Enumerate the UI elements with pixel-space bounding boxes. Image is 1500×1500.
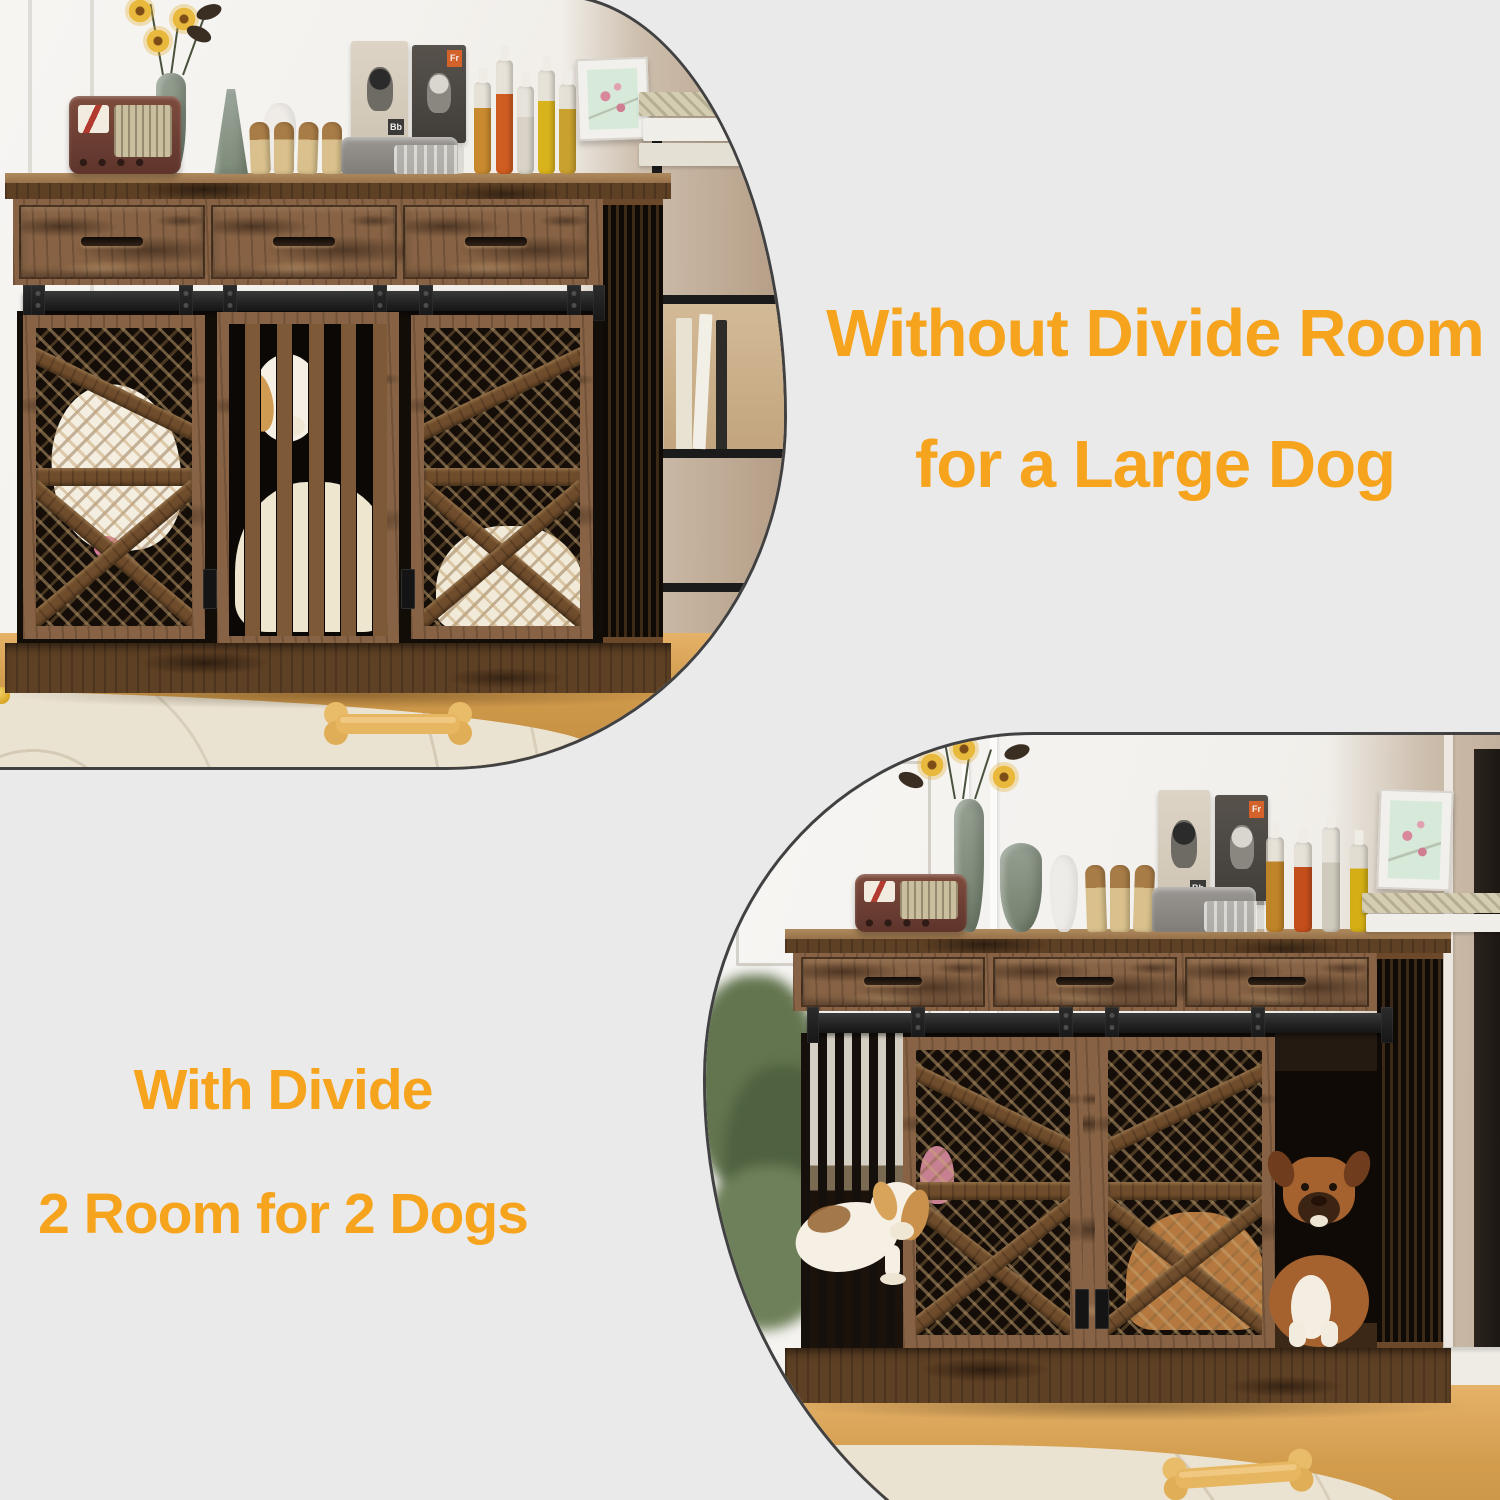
box-logo-fr: Fr <box>1249 801 1264 818</box>
deco-book <box>639 143 743 166</box>
drawer <box>801 957 985 1007</box>
headline-line: for a Large Dog <box>810 430 1500 500</box>
dog-package-graphic <box>367 67 393 111</box>
center-door-window <box>229 324 387 636</box>
crate-top-edge <box>785 939 1451 953</box>
box-logo-bb: Bb <box>388 119 404 135</box>
treat-tube <box>322 122 342 174</box>
headline-line: With Divide <box>0 1061 566 1120</box>
drawer-handle <box>1248 977 1306 985</box>
oil-vial-red <box>1294 842 1312 932</box>
picture-frame <box>1376 789 1453 892</box>
dog-crate-single <box>13 173 663 693</box>
headline-with-divider: With Divide 2 Room for 2 Dogs <box>0 1061 566 1244</box>
radio-knobs <box>864 919 931 927</box>
sunflower <box>920 753 944 777</box>
dog-package-graphic <box>1230 825 1254 869</box>
pet-food-box: Bb <box>1158 790 1210 902</box>
door-hinge <box>203 569 217 609</box>
oil-bottle-pale <box>517 86 534 174</box>
barn-door-window <box>424 328 580 626</box>
crate-base <box>5 643 671 693</box>
headline-line: Without Divide Room <box>810 299 1500 369</box>
barn-door-window <box>1108 1050 1262 1335</box>
door-brace-horizontal <box>1108 1182 1262 1200</box>
door-hanger <box>567 285 581 319</box>
rail-bracket <box>807 1007 819 1043</box>
dog-crate-divided <box>793 929 1443 1403</box>
boxer-dog <box>1261 1135 1381 1351</box>
book-spine <box>676 318 692 449</box>
sliding-door-rail <box>23 291 595 311</box>
clear-pack <box>394 145 464 174</box>
dog-package-graphic <box>427 73 451 113</box>
shelf-cubby <box>664 304 787 449</box>
drawer-handle <box>1056 977 1114 985</box>
barn-door-window <box>36 328 192 626</box>
drawer <box>211 205 397 279</box>
shelf-beam <box>652 449 787 458</box>
sunflower <box>992 765 1016 789</box>
dog-package-graphic <box>1171 820 1197 868</box>
frame-artwork <box>587 68 639 130</box>
door-hanger <box>1251 1007 1265 1041</box>
radio-display <box>864 881 895 902</box>
door-hanger <box>911 1007 925 1041</box>
box-logo-fr: Fr <box>447 50 462 67</box>
door-hanger <box>31 285 45 319</box>
oil-vial-amber <box>1266 837 1284 932</box>
rail-bracket <box>1381 1007 1393 1043</box>
door-hanger <box>1059 1007 1073 1041</box>
drawer-row <box>13 199 603 285</box>
radio-knobs <box>78 157 145 168</box>
vase-cone <box>214 89 248 174</box>
drawer <box>403 205 589 279</box>
door-hinge <box>1075 1289 1089 1329</box>
drawer <box>993 957 1177 1007</box>
treat-tube <box>1085 865 1107 933</box>
oil-bottle-orange <box>496 60 513 174</box>
barn-door-right <box>1095 1037 1275 1348</box>
frame-artwork <box>1388 800 1443 880</box>
door-hanger <box>1105 1007 1119 1041</box>
treat-tube <box>274 122 294 174</box>
deco-book <box>1366 914 1500 932</box>
sunflower <box>128 0 152 23</box>
headline-line: 2 Room for 2 Dogs <box>0 1185 566 1244</box>
wood-slats <box>229 324 387 636</box>
pet-food-box-dark: Fr <box>412 45 466 143</box>
door-hinge <box>401 569 415 609</box>
pet-food-box: Bb <box>351 41 408 140</box>
drawer <box>1185 957 1369 1007</box>
dark-furniture-edge <box>1474 749 1500 1425</box>
dried-bloom <box>194 1 223 23</box>
door-brace-horizontal <box>424 468 580 486</box>
radio-display <box>78 105 109 133</box>
treat-tube <box>1110 865 1130 932</box>
dried-bloom <box>1002 741 1031 762</box>
treat-tube <box>249 122 271 175</box>
headline-without-divider: Without Divide Room for a Large Dog <box>810 299 1500 500</box>
drawer-handle <box>864 977 922 985</box>
deco-book <box>643 118 743 141</box>
product-image-canvas: Bb Fr Without Divide Room for a Large Do… <box>0 0 1500 1500</box>
crate-top-surface <box>5 173 671 183</box>
book-spine <box>692 314 712 449</box>
deco-book <box>1362 893 1500 913</box>
oil-bottle-yellow <box>538 70 555 174</box>
door-hanger <box>419 285 433 319</box>
vintage-radio <box>855 874 967 932</box>
drawer-handle <box>81 237 143 246</box>
barn-door-left <box>23 315 205 639</box>
dried-bloom <box>184 22 213 46</box>
sunflower <box>146 29 170 53</box>
center-slat-door <box>217 312 399 648</box>
book-spine <box>716 320 727 449</box>
treat-tube <box>297 122 319 175</box>
photo-without-divider: Bb Fr <box>0 0 787 770</box>
crate-base <box>785 1348 1451 1403</box>
sliding-door-rail <box>807 1013 1383 1033</box>
drawer <box>19 205 205 279</box>
drawer-handle <box>465 237 527 246</box>
crate-top-edge <box>5 183 671 199</box>
photo-with-divider: Bb Fr <box>703 732 1500 1500</box>
barn-door-right <box>411 315 593 639</box>
dog-bone-toy <box>320 701 476 747</box>
vintage-radio <box>69 96 181 174</box>
vase-wide <box>1000 843 1042 932</box>
deco-book <box>639 92 735 116</box>
white-dog <box>789 1157 959 1287</box>
drawer-row <box>793 953 1377 1011</box>
oil-vial-pale <box>1322 827 1340 932</box>
oil-bottle-gold <box>559 84 576 174</box>
shelf-beam <box>652 583 787 592</box>
drawer-handle <box>273 237 335 246</box>
door-hanger <box>179 285 193 319</box>
sunflower <box>952 737 976 761</box>
vase-white <box>1050 855 1078 932</box>
radio-grill <box>114 105 172 156</box>
radio-grill <box>900 881 958 919</box>
door-hinge <box>1095 1289 1109 1329</box>
shelf-beam <box>652 295 787 304</box>
crate-side-slats <box>603 199 663 643</box>
rail-bracket <box>593 285 605 321</box>
door-brace-horizontal <box>36 468 192 486</box>
oil-bottle-amber <box>474 82 491 174</box>
